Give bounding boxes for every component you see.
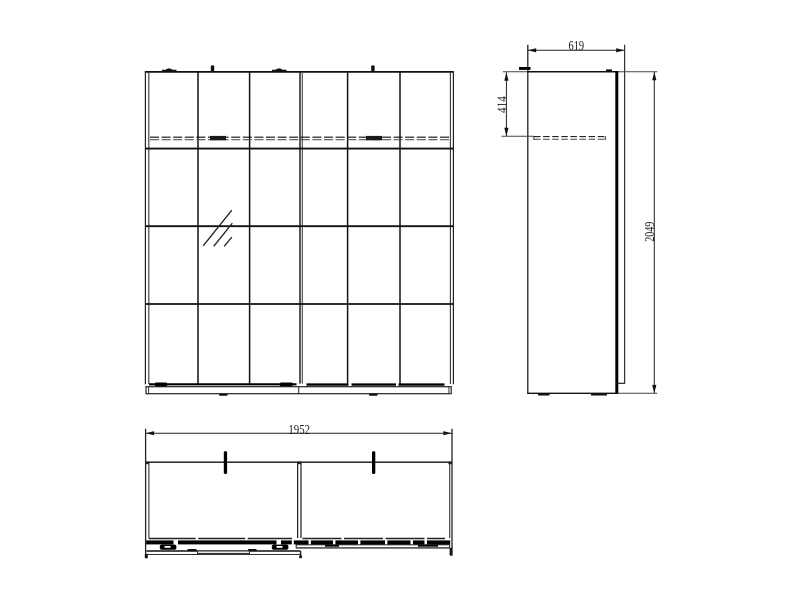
svg-text:2049: 2049 [643,222,658,242]
svg-text:619: 619 [569,39,585,54]
svg-text:414: 414 [495,96,510,113]
svg-text:1952: 1952 [288,423,310,438]
